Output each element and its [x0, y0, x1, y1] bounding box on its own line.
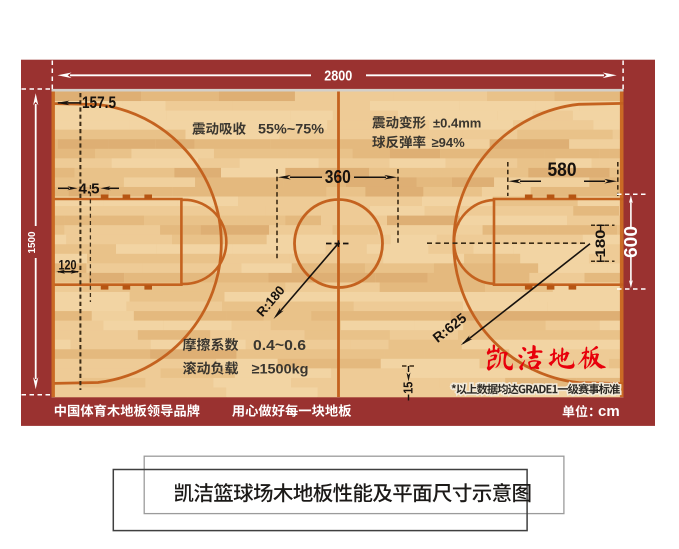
svg-text:180: 180 [592, 229, 608, 257]
svg-text:600: 600 [621, 226, 641, 258]
svg-text:≥94%: ≥94% [432, 135, 466, 150]
svg-text:120: 120 [59, 257, 77, 272]
svg-text:0.4~0.6: 0.4~0.6 [253, 337, 306, 354]
svg-text:55%~75%: 55%~75% [258, 121, 325, 137]
svg-text:cm: cm [598, 403, 620, 420]
svg-text:360: 360 [325, 167, 351, 187]
svg-text:≥1500kg: ≥1500kg [252, 360, 309, 376]
svg-text:4.5: 4.5 [79, 180, 100, 197]
svg-text:157.5: 157.5 [82, 93, 116, 112]
svg-text:1500: 1500 [27, 231, 38, 253]
svg-text:±0.4mm: ±0.4mm [433, 115, 481, 130]
svg-text:2800: 2800 [324, 69, 352, 85]
svg-text:15: 15 [400, 382, 415, 394]
svg-text:580: 580 [548, 160, 577, 181]
